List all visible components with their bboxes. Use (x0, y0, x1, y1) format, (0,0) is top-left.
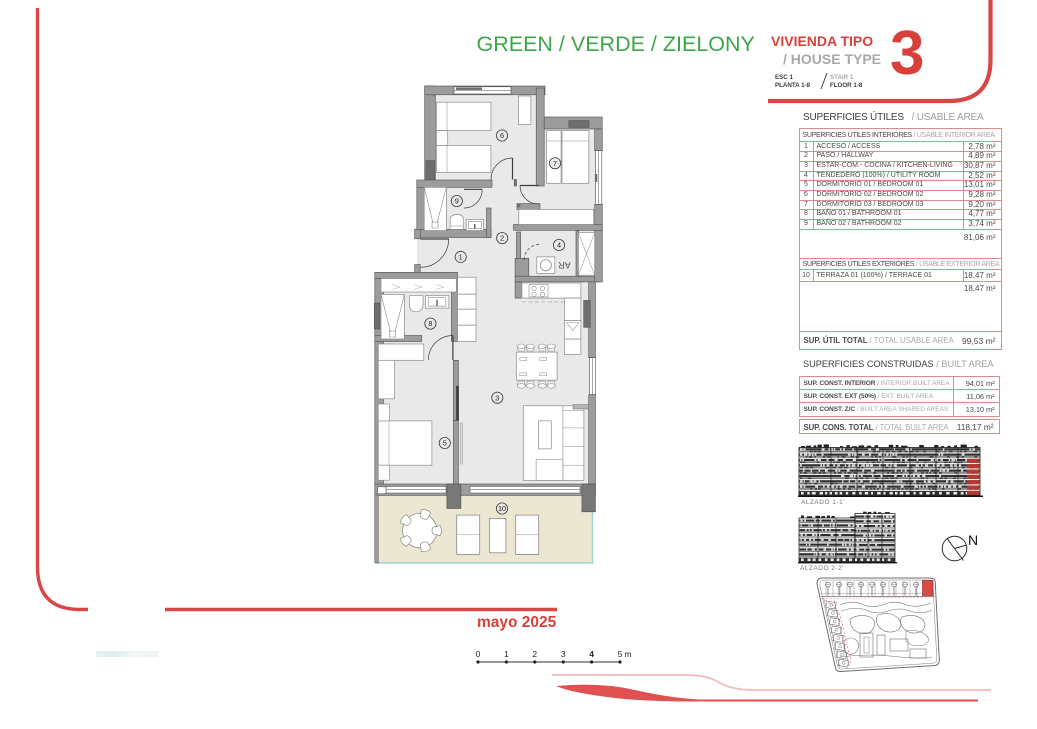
svg-text:5: 5 (618, 649, 623, 659)
svg-text:10: 10 (498, 504, 506, 513)
svg-text:3: 3 (495, 393, 499, 402)
svg-text:3: 3 (561, 649, 566, 659)
svg-text:2: 2 (500, 234, 504, 243)
svg-text:AR: AR (558, 260, 571, 270)
svg-text:8: 8 (428, 319, 432, 328)
svg-text:m: m (624, 649, 631, 659)
svg-text:7: 7 (553, 159, 557, 168)
svg-text:4: 4 (557, 241, 561, 250)
svg-text:1: 1 (504, 649, 509, 659)
svg-text:N: N (968, 532, 978, 548)
svg-text:0: 0 (476, 649, 481, 659)
svg-text:5: 5 (443, 439, 447, 448)
svg-text:9: 9 (455, 197, 459, 206)
svg-text:6: 6 (500, 131, 504, 140)
svg-text:1: 1 (459, 253, 463, 262)
svg-text:4: 4 (589, 649, 594, 659)
svg-text:2: 2 (532, 649, 537, 659)
